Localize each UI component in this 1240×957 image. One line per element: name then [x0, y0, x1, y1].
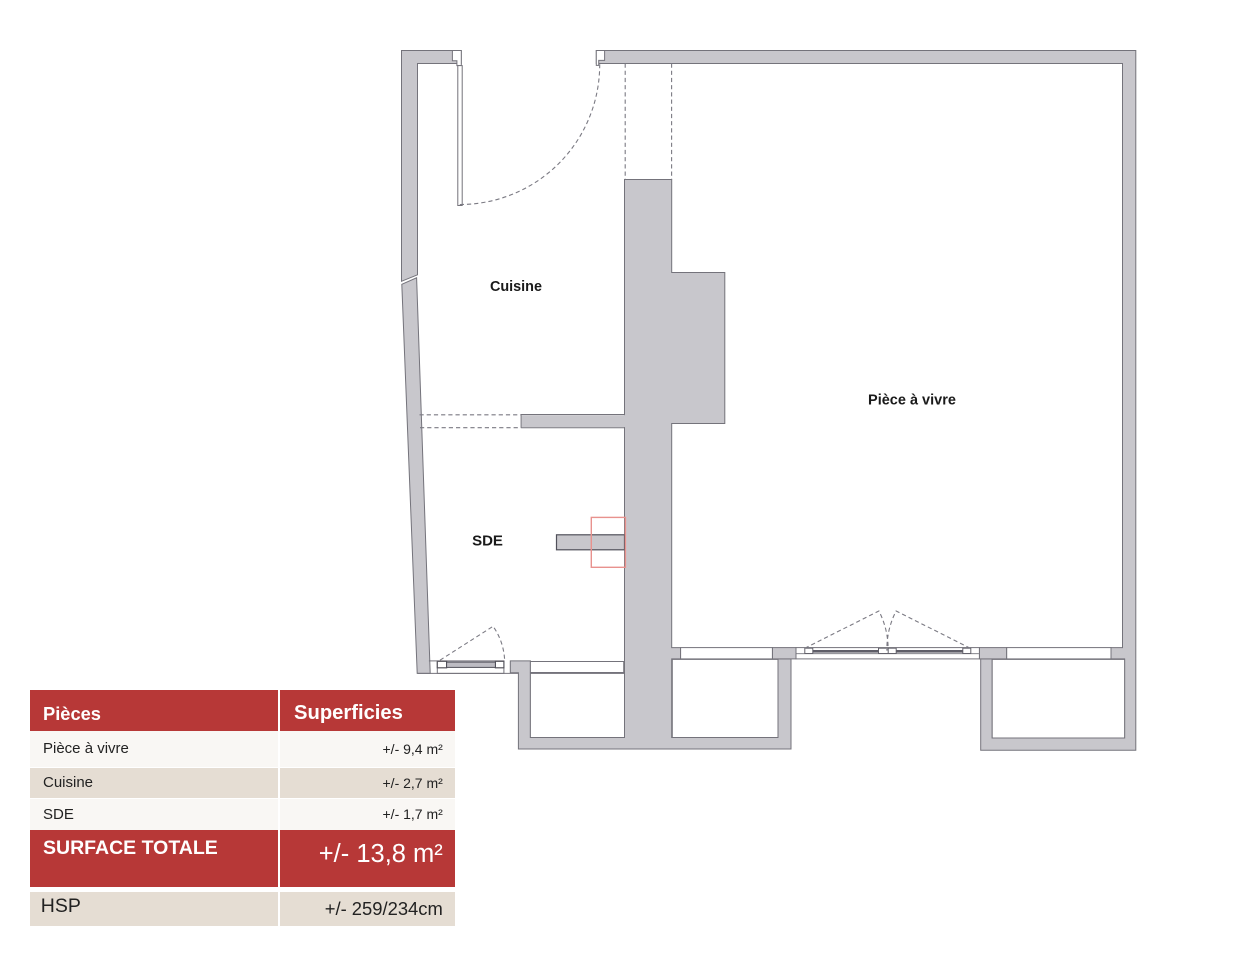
svg-text:SDE: SDE: [472, 533, 503, 550]
svg-text:Pièce à vivre: Pièce à vivre: [868, 393, 956, 409]
svg-text:Cuisine: Cuisine: [490, 279, 542, 295]
